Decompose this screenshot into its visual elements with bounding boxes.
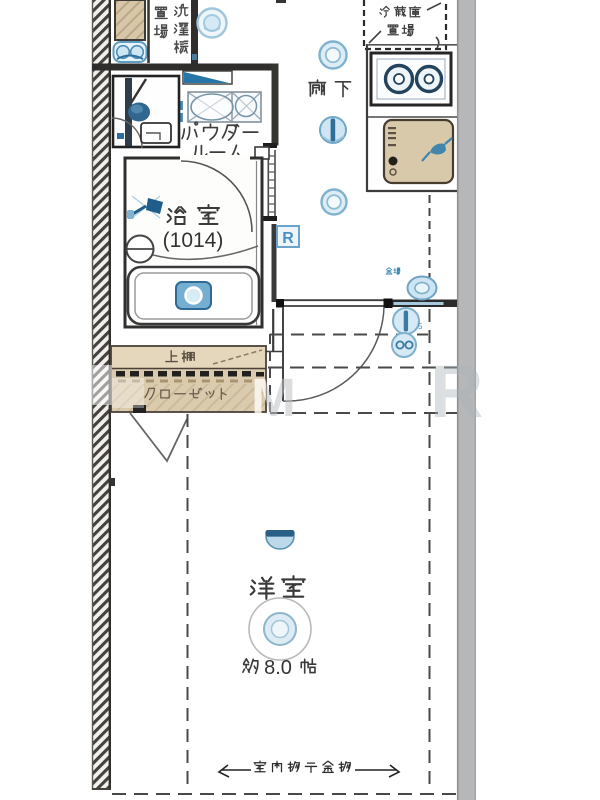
svg-text:(1014): (1014) <box>163 229 224 252</box>
svg-text:5: 5 <box>418 322 423 331</box>
svg-text:R: R <box>282 230 294 247</box>
svg-text:8.0: 8.0 <box>264 657 292 679</box>
svg-text:R: R <box>430 350 483 433</box>
